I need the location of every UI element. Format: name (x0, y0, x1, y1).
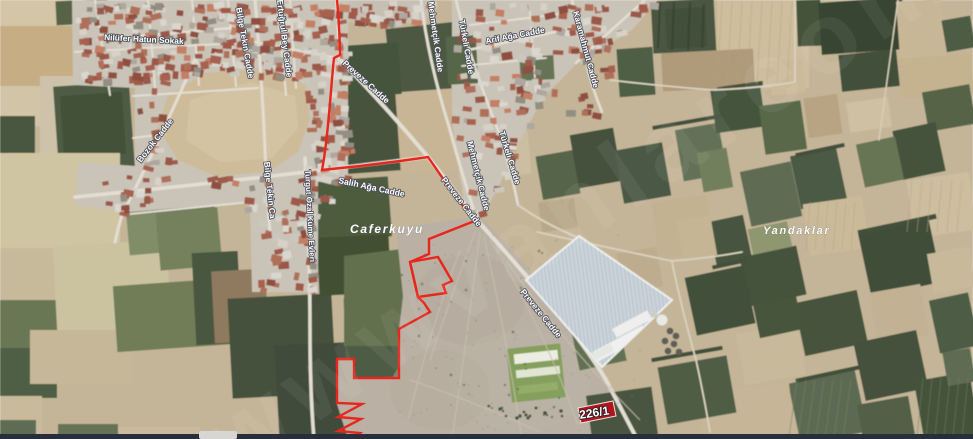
svg-text:Caferkuyu: Caferkuyu (350, 222, 424, 236)
svg-text:Yandaklar: Yandaklar (763, 225, 830, 237)
